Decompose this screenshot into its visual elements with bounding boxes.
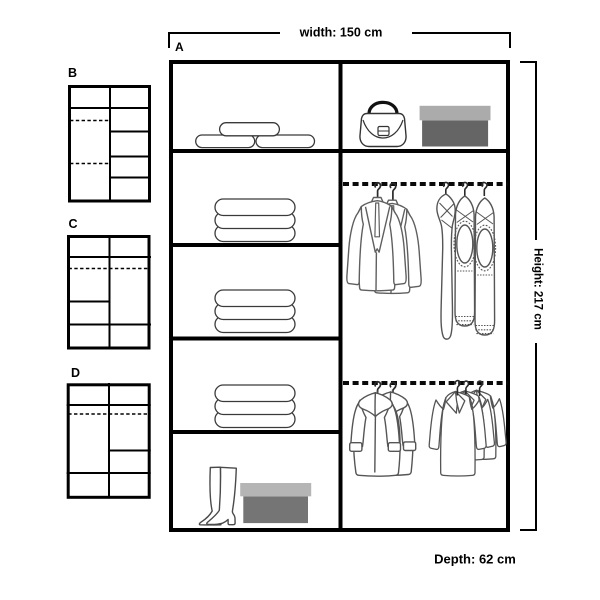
svg-text:D: D [71,366,80,380]
svg-text:width: 150 cm: width: 150 cm [299,26,383,40]
svg-text:B: B [68,66,77,80]
svg-text:A: A [175,40,184,54]
svg-text:Height: 217 cm: Height: 217 cm [532,248,544,330]
svg-text:Depth: 62 cm: Depth: 62 cm [434,552,516,567]
svg-text:C: C [69,217,78,231]
